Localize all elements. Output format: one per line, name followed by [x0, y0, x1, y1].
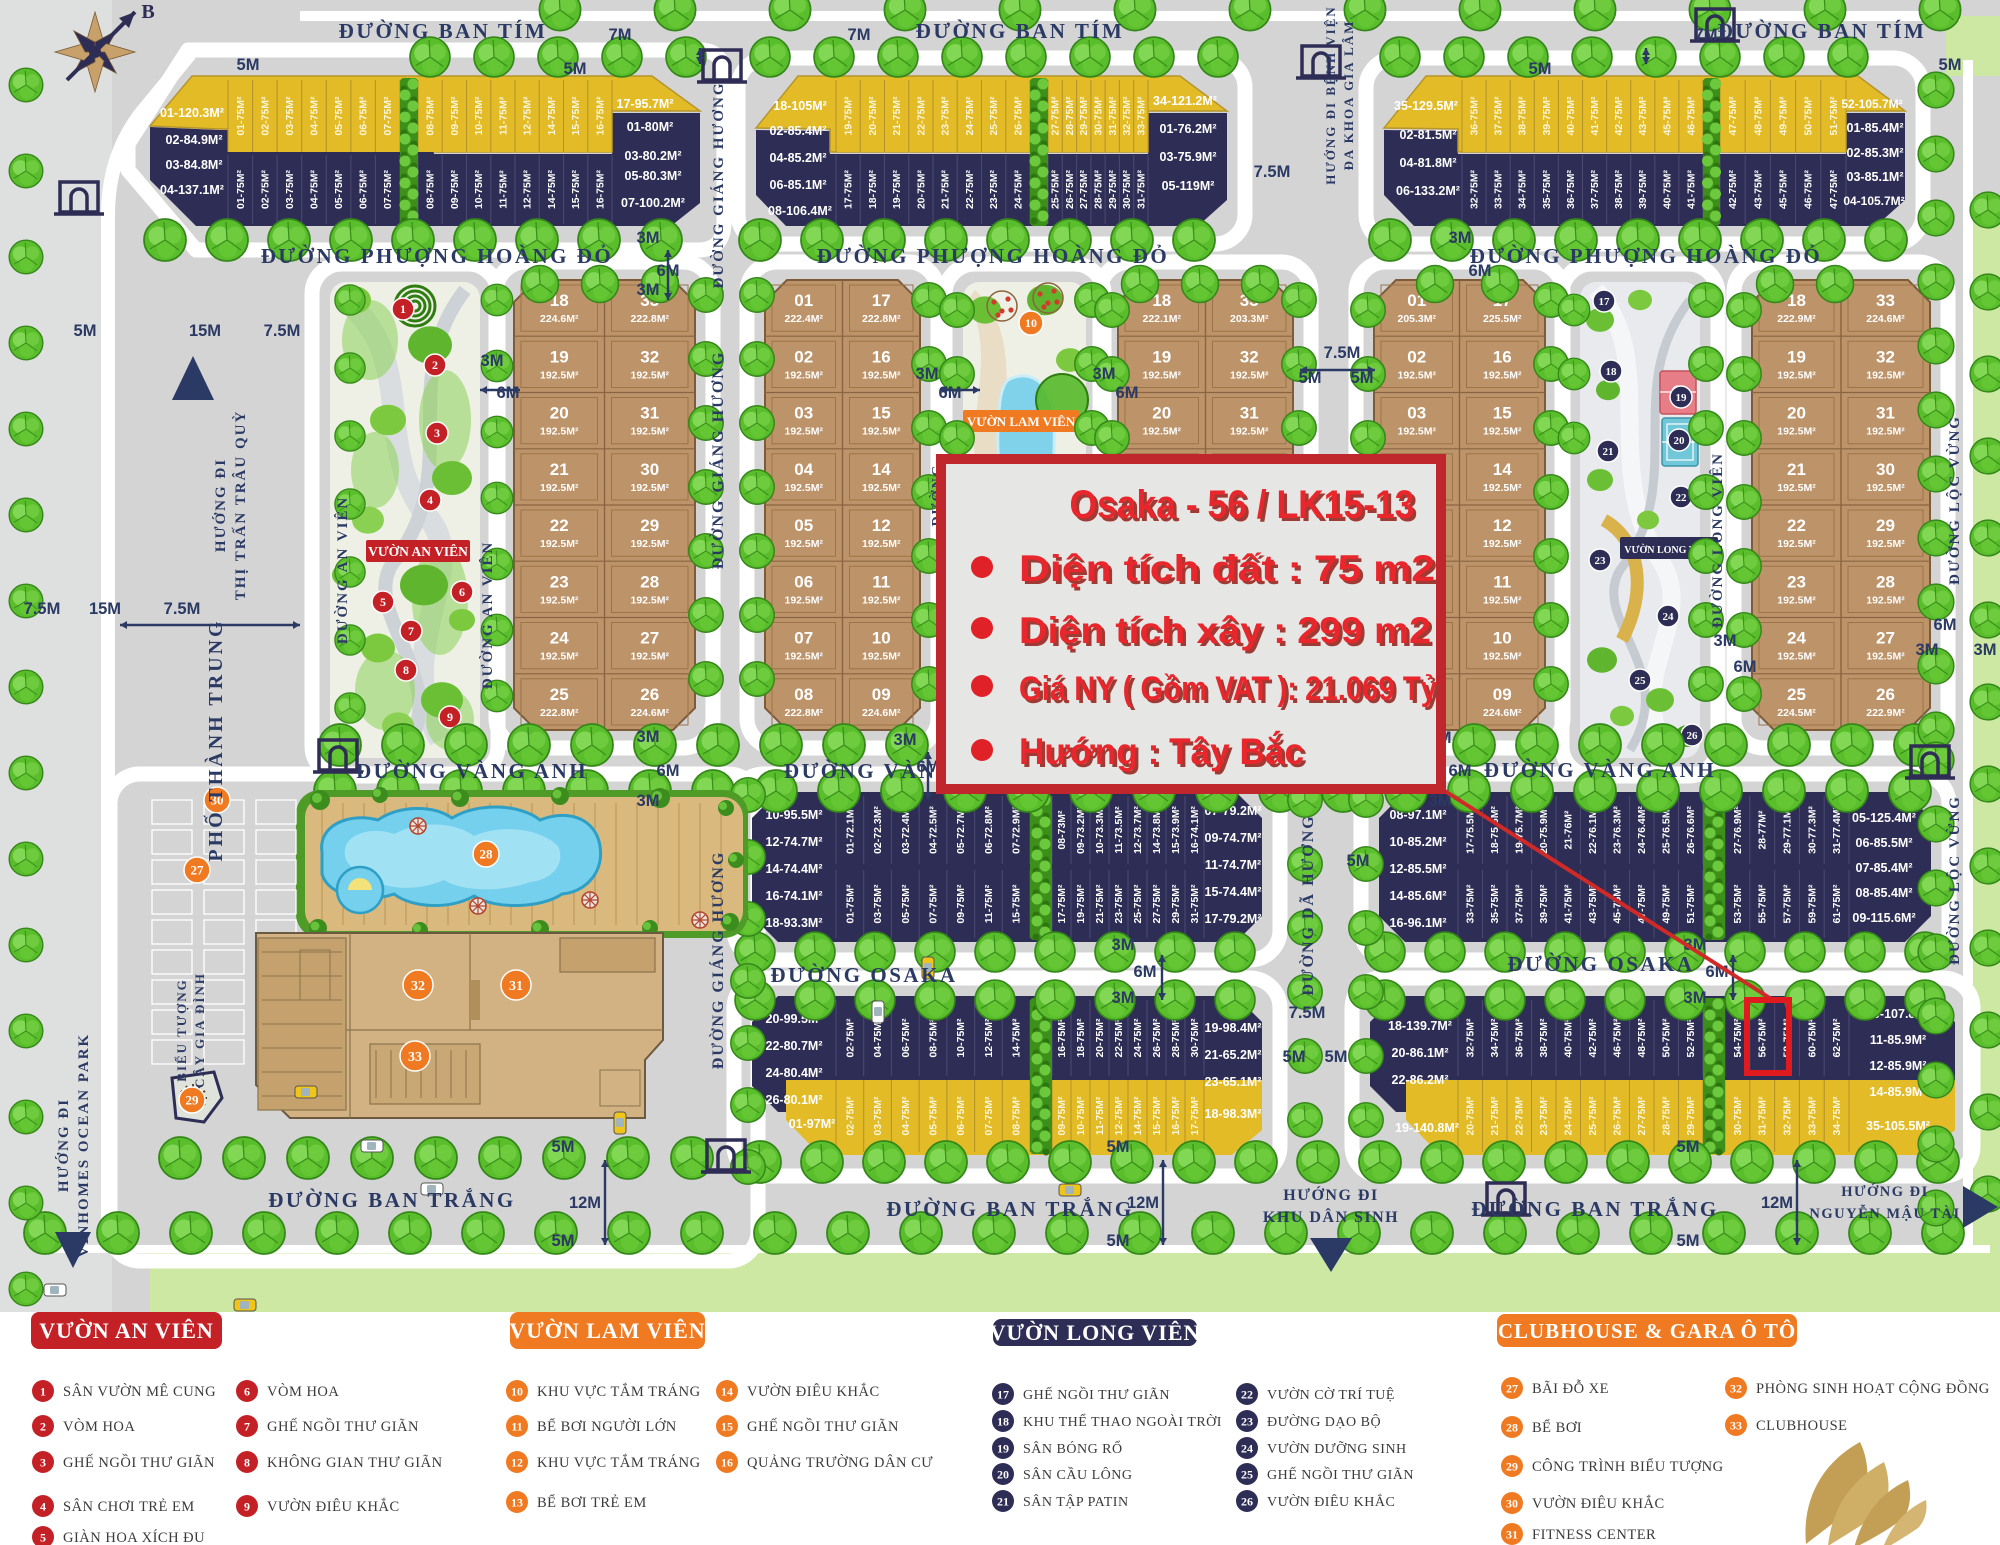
- svg-text:07-75M²: 07-75M²: [382, 169, 394, 209]
- svg-text:04-75M²: 04-75M²: [308, 169, 320, 209]
- svg-text:07-85.4M²: 07-85.4M²: [1856, 861, 1913, 875]
- svg-text:6M: 6M: [1116, 384, 1139, 402]
- svg-text:CLUBHOUSE & GARA Ô TÔ: CLUBHOUSE & GARA Ô TÔ: [1498, 1319, 1796, 1343]
- svg-text:7M: 7M: [848, 26, 871, 44]
- svg-text:27-76.9M²: 27-76.9M²: [1732, 806, 1744, 854]
- svg-text:192.5M²: 192.5M²: [784, 538, 823, 550]
- svg-text:57-75M²: 57-75M²: [1781, 884, 1793, 924]
- svg-text:30-75M²: 30-75M²: [1092, 96, 1104, 136]
- svg-text:3M: 3M: [637, 281, 660, 299]
- svg-text:3M: 3M: [1112, 989, 1135, 1007]
- svg-text:SÂN VƯỜN MÊ CUNG: SÂN VƯỜN MÊ CUNG: [63, 1383, 216, 1400]
- svg-text:7M: 7M: [609, 26, 632, 44]
- svg-text:04-137.1M²: 04-137.1M²: [160, 183, 224, 197]
- svg-text:3M: 3M: [637, 792, 660, 810]
- svg-text:PHÒNG SINH HOẠT CỘNG ĐỒNG: PHÒNG SINH HOẠT CỘNG ĐỒNG: [1756, 1379, 1990, 1397]
- svg-text:24-75M²: 24-75M²: [1563, 1096, 1575, 1136]
- svg-text:21: 21: [1603, 446, 1614, 458]
- svg-text:192.5M²: 192.5M²: [1777, 594, 1816, 606]
- svg-text:48-75M²: 48-75M²: [1752, 96, 1764, 136]
- svg-text:03-75.9M²: 03-75.9M²: [1160, 150, 1217, 164]
- svg-text:14-75M²: 14-75M²: [1132, 1096, 1144, 1136]
- svg-text:ĐƯỜNG BAN TÍM: ĐƯỜNG BAN TÍM: [1718, 19, 1927, 43]
- svg-text:46-75M²: 46-75M²: [1685, 96, 1697, 136]
- svg-text:5M: 5M: [552, 1232, 575, 1250]
- svg-text:5M: 5M: [1283, 1048, 1306, 1066]
- svg-text:05-75M²: 05-75M²: [333, 96, 345, 136]
- svg-text:222.4M²: 222.4M²: [784, 313, 823, 325]
- svg-text:56-75M²: 56-75M²: [1757, 1018, 1769, 1058]
- svg-text:55-75M²: 55-75M²: [1757, 884, 1769, 924]
- svg-text:42-75M²: 42-75M²: [1587, 1018, 1599, 1058]
- svg-text:36-75M²: 36-75M²: [1514, 1018, 1526, 1058]
- svg-text:14-75M²: 14-75M²: [546, 169, 558, 209]
- svg-text:ĐƯỜNG LỘC VỪNG: ĐƯỜNG LỘC VỪNG: [1946, 795, 1963, 965]
- svg-text:01-76.2M²: 01-76.2M²: [1160, 122, 1217, 136]
- svg-text:192.5M²: 192.5M²: [1483, 651, 1522, 663]
- svg-text:ĐƯỜNG BAN TRẮNG: ĐƯỜNG BAN TRẮNG: [268, 1188, 516, 1212]
- svg-text:02-75M²: 02-75M²: [259, 96, 271, 136]
- svg-text:03-80.2M²: 03-80.2M²: [625, 149, 682, 163]
- svg-text:07-75M²: 07-75M²: [382, 96, 394, 136]
- svg-text:01-120.3M²: 01-120.3M²: [160, 106, 224, 120]
- svg-text:23: 23: [1787, 572, 1806, 591]
- svg-text:01: 01: [794, 291, 813, 310]
- svg-text:1: 1: [40, 1385, 46, 1399]
- svg-text:27-75M²: 27-75M²: [1050, 96, 1062, 136]
- svg-text:17: 17: [997, 1388, 1009, 1402]
- svg-text:8: 8: [244, 1456, 250, 1470]
- svg-text:22: 22: [550, 516, 569, 535]
- svg-text:26: 26: [1241, 1495, 1253, 1509]
- svg-text:06-75M²: 06-75M²: [955, 1096, 967, 1136]
- svg-text:31-75M²: 31-75M²: [1107, 96, 1119, 136]
- svg-text:33-75M²: 33-75M²: [1493, 169, 1505, 209]
- svg-text:28: 28: [640, 572, 659, 591]
- svg-text:VÒM HOA: VÒM HOA: [267, 1383, 339, 1400]
- svg-text:4: 4: [427, 493, 433, 507]
- svg-text:BỂ BƠI NGƯỜI LỚN: BỂ BƠI NGƯỜI LỚN: [537, 1417, 677, 1435]
- svg-text:VƯỜN DƯỠNG SINH: VƯỜN DƯỠNG SINH: [1267, 1440, 1407, 1457]
- svg-text:VƯỜN LONG VIÊN: VƯỜN LONG VIÊN: [990, 1320, 1201, 1345]
- svg-text:32-75M²: 32-75M²: [1781, 1096, 1793, 1136]
- svg-text:15M: 15M: [89, 600, 121, 618]
- svg-text:43-75M²: 43-75M²: [1637, 96, 1649, 136]
- svg-text:25-76.5M²: 25-76.5M²: [1661, 806, 1673, 854]
- svg-text:21-65.2M²: 21-65.2M²: [1205, 1048, 1262, 1062]
- svg-text:47-75M²: 47-75M²: [1727, 96, 1739, 136]
- svg-text:SÂN CHƠI TRẺ EM: SÂN CHƠI TRẺ EM: [63, 1498, 195, 1515]
- svg-text:15-75M²: 15-75M²: [1151, 1096, 1163, 1136]
- svg-text:09: 09: [872, 685, 891, 704]
- svg-text:23: 23: [1595, 555, 1607, 567]
- svg-text:51-75M²: 51-75M²: [1828, 96, 1840, 136]
- svg-text:29: 29: [1876, 516, 1895, 535]
- svg-text:ĐƯỜNG DẠO BỘ: ĐƯỜNG DẠO BỘ: [1267, 1413, 1381, 1430]
- svg-text:20: 20: [550, 404, 569, 423]
- svg-text:15-75M²: 15-75M²: [1011, 884, 1023, 924]
- svg-text:15-73.9M²: 15-73.9M²: [1170, 806, 1182, 854]
- svg-text:27: 27: [1876, 629, 1895, 648]
- svg-text:ĐƯỜNG OSAKA: ĐƯỜNG OSAKA: [1507, 952, 1694, 976]
- svg-text:49-75M²: 49-75M²: [1777, 96, 1789, 136]
- svg-text:61-75M²: 61-75M²: [1831, 884, 1843, 924]
- svg-text:30: 30: [1506, 1497, 1518, 1511]
- svg-text:31: 31: [1240, 404, 1259, 423]
- svg-text:16: 16: [721, 1456, 733, 1470]
- svg-text:10-75M²: 10-75M²: [1075, 1096, 1087, 1136]
- svg-text:192.5M²: 192.5M²: [630, 538, 669, 550]
- svg-text:6M: 6M: [1469, 262, 1492, 280]
- svg-text:15-75M²: 15-75M²: [570, 96, 582, 136]
- svg-text:35-129.5M²: 35-129.5M²: [1394, 99, 1458, 113]
- svg-text:05-75M²: 05-75M²: [900, 884, 912, 924]
- svg-text:222.8M²: 222.8M²: [862, 313, 901, 325]
- svg-text:29: 29: [1506, 1460, 1518, 1474]
- svg-text:22-75M²: 22-75M²: [915, 96, 927, 136]
- svg-text:3M: 3M: [481, 352, 504, 370]
- svg-text:06-133.2M²: 06-133.2M²: [1396, 184, 1460, 198]
- svg-text:QUẢNG TRƯỜNG DÂN CƯ: QUẢNG TRƯỜNG DÂN CƯ: [747, 1454, 933, 1471]
- svg-text:6M: 6M: [497, 384, 520, 402]
- svg-text:34-75M²: 34-75M²: [1489, 1018, 1501, 1058]
- svg-text:26-76.6M²: 26-76.6M²: [1685, 806, 1697, 854]
- svg-text:Diện tích đất : 75 m2: Diện tích đất : 75 m2: [1019, 548, 1435, 589]
- svg-text:25: 25: [1635, 675, 1647, 687]
- svg-text:192.5M²: 192.5M²: [784, 426, 823, 438]
- svg-text:07-75M²: 07-75M²: [927, 884, 939, 924]
- svg-text:192.5M²: 192.5M²: [862, 538, 901, 550]
- svg-text:192.5M²: 192.5M²: [1777, 538, 1816, 550]
- svg-text:14-85.9M²: 14-85.9M²: [1870, 1085, 1927, 1099]
- svg-text:41-75M²: 41-75M²: [1589, 96, 1601, 136]
- svg-text:24-75M²: 24-75M²: [964, 96, 976, 136]
- svg-text:6M: 6M: [657, 762, 680, 780]
- svg-text:40-75M²: 40-75M²: [1661, 169, 1673, 209]
- svg-text:18-98.3M²: 18-98.3M²: [1205, 1107, 1262, 1121]
- svg-text:192.5M²: 192.5M²: [1483, 594, 1522, 606]
- svg-text:24-75M²: 24-75M²: [1132, 1018, 1144, 1058]
- svg-text:15: 15: [1493, 404, 1512, 423]
- svg-text:224.6M²: 224.6M²: [862, 707, 901, 719]
- svg-text:06-85.1M²: 06-85.1M²: [770, 178, 827, 192]
- svg-text:28-75M²: 28-75M²: [1661, 1096, 1673, 1136]
- svg-text:222.8M²: 222.8M²: [540, 707, 579, 719]
- svg-text:192.5M²: 192.5M²: [1142, 369, 1181, 381]
- svg-text:26-80.1M²: 26-80.1M²: [766, 1093, 823, 1107]
- svg-text:25-75M²: 25-75M²: [1050, 169, 1062, 209]
- svg-text:ĐƯỜNG LONG VIÊN: ĐƯỜNG LONG VIÊN: [1709, 452, 1726, 628]
- svg-text:38-75M²: 38-75M²: [1613, 169, 1625, 209]
- svg-text:28: 28: [480, 847, 494, 862]
- svg-text:7.5M: 7.5M: [1289, 1004, 1326, 1022]
- svg-text:39-75M²: 39-75M²: [1637, 169, 1649, 209]
- svg-text:1: 1: [400, 302, 406, 316]
- svg-text:224.6M²: 224.6M²: [1866, 313, 1905, 325]
- svg-text:11-75M²: 11-75M²: [497, 96, 509, 135]
- svg-text:16-75M²: 16-75M²: [594, 96, 606, 136]
- svg-text:06-72.8M²: 06-72.8M²: [983, 806, 995, 854]
- svg-text:27-75M²: 27-75M²: [1151, 884, 1163, 924]
- svg-text:SÂN BÓNG RỔ: SÂN BÓNG RỔ: [1023, 1439, 1123, 1457]
- svg-text:16-75M²: 16-75M²: [1056, 1018, 1068, 1058]
- svg-text:03-84.8M²: 03-84.8M²: [166, 158, 223, 172]
- svg-text:BỂ BƠI: BỂ BƠI: [1532, 1418, 1582, 1436]
- svg-text:5M: 5M: [1299, 369, 1322, 387]
- svg-text:03-75M²: 03-75M²: [284, 96, 296, 136]
- svg-text:03: 03: [1407, 404, 1426, 423]
- svg-text:20-75M²: 20-75M²: [1094, 1018, 1106, 1058]
- svg-text:192.5M²: 192.5M²: [862, 426, 901, 438]
- svg-text:16: 16: [872, 347, 891, 366]
- svg-text:01-75M²: 01-75M²: [844, 884, 856, 924]
- svg-text:19-75.7M²: 19-75.7M²: [1514, 806, 1526, 854]
- svg-text:02-75M²: 02-75M²: [259, 169, 271, 209]
- svg-text:40-75M²: 40-75M²: [1565, 96, 1577, 136]
- svg-text:06: 06: [794, 572, 813, 591]
- svg-text:17-75M²: 17-75M²: [1189, 1096, 1201, 1136]
- svg-text:18-139.7M²: 18-139.7M²: [1388, 1019, 1452, 1033]
- svg-text:192.5M²: 192.5M²: [630, 426, 669, 438]
- svg-text:06-75M²: 06-75M²: [358, 96, 370, 136]
- svg-text:25-75M²: 25-75M²: [1132, 884, 1144, 924]
- svg-text:192.5M²: 192.5M²: [1397, 369, 1436, 381]
- svg-text:6: 6: [459, 585, 465, 599]
- svg-text:08-75M²: 08-75M²: [1011, 1096, 1023, 1136]
- svg-text:21-75M²: 21-75M²: [940, 169, 952, 209]
- svg-text:192.5M²: 192.5M²: [1866, 369, 1905, 381]
- svg-text:17: 17: [1599, 296, 1611, 308]
- svg-text:26-75M²: 26-75M²: [1151, 1018, 1163, 1058]
- svg-text:Osaka - 56 / LK15-13: Osaka - 56 / LK15-13: [1070, 483, 1415, 527]
- svg-text:02-75M²: 02-75M²: [844, 1096, 856, 1136]
- svg-text:08-85.4M²: 08-85.4M²: [1856, 886, 1913, 900]
- svg-text:18-93.3M²: 18-93.3M²: [766, 916, 823, 930]
- svg-text:222.1M²: 222.1M²: [1142, 313, 1181, 325]
- svg-text:23-75M²: 23-75M²: [988, 169, 1000, 209]
- svg-text:NGUYỄN MẬU TÀI: NGUYỄN MẬU TÀI: [1809, 1204, 1960, 1222]
- svg-text:222.8M²: 222.8M²: [784, 707, 823, 719]
- svg-text:192.5M²: 192.5M²: [1777, 426, 1816, 438]
- svg-text:29-75M²: 29-75M²: [1170, 884, 1182, 924]
- svg-text:25: 25: [1241, 1468, 1253, 1482]
- svg-text:06-75M²: 06-75M²: [900, 1018, 912, 1058]
- svg-text:192.5M²: 192.5M²: [630, 482, 669, 494]
- svg-text:24: 24: [550, 629, 569, 648]
- svg-text:20-86.1M²: 20-86.1M²: [1392, 1046, 1449, 1060]
- svg-text:27: 27: [1506, 1382, 1518, 1396]
- svg-text:12-85.9M²: 12-85.9M²: [1870, 1059, 1927, 1073]
- svg-text:33-75M²: 33-75M²: [1806, 1096, 1818, 1136]
- svg-text:3M: 3M: [1112, 936, 1135, 954]
- svg-text:7.5M: 7.5M: [1324, 344, 1361, 362]
- svg-text:37-75M²: 37-75M²: [1514, 884, 1526, 924]
- svg-text:192.5M²: 192.5M²: [784, 651, 823, 663]
- svg-text:26-75M²: 26-75M²: [1064, 169, 1076, 209]
- svg-text:02-81.5M²: 02-81.5M²: [1400, 128, 1457, 142]
- svg-text:12: 12: [872, 516, 891, 535]
- svg-text:53-75M²: 53-75M²: [1732, 884, 1744, 924]
- svg-text:5: 5: [40, 1531, 46, 1545]
- svg-text:16-74.1M²: 16-74.1M²: [1189, 806, 1201, 854]
- svg-text:3M: 3M: [1093, 365, 1116, 383]
- svg-text:5M: 5M: [1939, 56, 1962, 74]
- svg-text:15M: 15M: [189, 322, 221, 340]
- svg-text:192.5M²: 192.5M²: [1230, 369, 1269, 381]
- svg-text:59-75M²: 59-75M²: [1806, 884, 1818, 924]
- svg-text:33-75M²: 33-75M²: [1465, 884, 1477, 924]
- svg-text:6M: 6M: [1134, 963, 1157, 981]
- svg-text:27: 27: [640, 629, 659, 648]
- svg-text:VƯỜN AN VIÊN: VƯỜN AN VIÊN: [368, 544, 468, 559]
- svg-text:37-75M²: 37-75M²: [1493, 96, 1505, 136]
- svg-text:7.5M: 7.5M: [1254, 163, 1291, 181]
- svg-text:192.5M²: 192.5M²: [1866, 594, 1905, 606]
- svg-text:51-75M²: 51-75M²: [1685, 884, 1697, 924]
- svg-text:23: 23: [1241, 1415, 1253, 1429]
- svg-text:30-75M²: 30-75M²: [1189, 1018, 1201, 1058]
- svg-text:GHẾ NGỒI THƯ GIÃN: GHẾ NGỒI THƯ GIÃN: [1023, 1385, 1170, 1403]
- svg-text:09: 09: [1493, 685, 1512, 704]
- svg-text:Diện tích xây : 299 m2: Diện tích xây : 299 m2: [1019, 610, 1431, 651]
- svg-text:5M: 5M: [1677, 1232, 1700, 1250]
- svg-text:12-75M²: 12-75M²: [522, 96, 534, 136]
- svg-text:01-75M²: 01-75M²: [235, 96, 247, 136]
- svg-text:BÃI ĐỖ XE: BÃI ĐỖ XE: [1532, 1379, 1609, 1397]
- svg-text:30-75M²: 30-75M²: [1121, 169, 1133, 209]
- svg-text:192.5M²: 192.5M²: [1483, 369, 1522, 381]
- svg-text:18-75.6M²: 18-75.6M²: [1489, 806, 1501, 854]
- svg-text:192.5M²: 192.5M²: [1777, 369, 1816, 381]
- svg-text:7: 7: [244, 1420, 250, 1434]
- svg-text:Giá NY ( Gồm VAT ): 21.069 Tỷ: Giá NY ( Gồm VAT ): 21.069 Tỷ: [1019, 670, 1437, 708]
- svg-text:45-75M²: 45-75M²: [1777, 169, 1789, 209]
- svg-text:20: 20: [1674, 435, 1686, 447]
- svg-text:192.5M²: 192.5M²: [1777, 651, 1816, 663]
- svg-text:50-75M²: 50-75M²: [1661, 1018, 1673, 1058]
- svg-text:07: 07: [794, 629, 813, 648]
- svg-text:14-85.6M²: 14-85.6M²: [1390, 889, 1447, 903]
- svg-text:14-75M²: 14-75M²: [1011, 1018, 1023, 1058]
- svg-text:15-74.4M²: 15-74.4M²: [1205, 885, 1262, 899]
- svg-text:22-80.7M²: 22-80.7M²: [766, 1039, 823, 1053]
- svg-text:KHU DÂN SINH: KHU DÂN SINH: [1263, 1207, 1399, 1226]
- svg-text:10-75M²: 10-75M²: [473, 169, 485, 209]
- svg-text:24-75M²: 24-75M²: [1012, 169, 1024, 209]
- svg-text:30: 30: [1876, 460, 1895, 479]
- svg-text:02: 02: [794, 347, 813, 366]
- svg-text:24: 24: [1663, 611, 1675, 623]
- svg-text:08-106.4M²: 08-106.4M²: [768, 204, 832, 218]
- svg-text:08-75M²: 08-75M²: [927, 1018, 939, 1058]
- svg-text:192.5M²: 192.5M²: [540, 651, 579, 663]
- svg-text:24: 24: [1787, 629, 1806, 648]
- svg-text:27-75M²: 27-75M²: [1078, 169, 1090, 209]
- svg-text:222.9M²: 222.9M²: [1866, 707, 1905, 719]
- svg-text:19-140.8M²: 19-140.8M²: [1395, 1121, 1459, 1135]
- svg-text:9: 9: [244, 1500, 250, 1514]
- svg-text:04-72.5M²: 04-72.5M²: [927, 806, 939, 854]
- svg-text:32: 32: [1730, 1382, 1742, 1396]
- svg-text:14: 14: [872, 460, 891, 479]
- svg-text:192.5M²: 192.5M²: [1142, 426, 1181, 438]
- svg-text:GHẾ NGỒI THƯ GIÃN: GHẾ NGỒI THƯ GIÃN: [1267, 1465, 1414, 1483]
- svg-text:05: 05: [794, 516, 813, 535]
- svg-text:3M: 3M: [1916, 641, 1939, 659]
- svg-text:35-75M²: 35-75M²: [1541, 169, 1553, 209]
- svg-text:31: 31: [1876, 404, 1895, 423]
- svg-text:12-75M²: 12-75M²: [983, 1018, 995, 1058]
- svg-text:BIỂU TƯỢNG: BIỂU TƯỢNG: [174, 978, 189, 1081]
- svg-text:GHẾ NGỒI THƯ GIÃN: GHẾ NGỒI THƯ GIÃN: [63, 1453, 215, 1471]
- svg-text:19: 19: [550, 347, 569, 366]
- svg-text:5M: 5M: [1107, 1138, 1130, 1156]
- svg-text:21: 21: [997, 1495, 1009, 1509]
- svg-text:17-79.2M²: 17-79.2M²: [1205, 912, 1262, 926]
- svg-text:25: 25: [1787, 685, 1806, 704]
- svg-text:192.5M²: 192.5M²: [784, 482, 823, 494]
- svg-text:32-75M²: 32-75M²: [1121, 96, 1133, 136]
- svg-text:192.5M²: 192.5M²: [540, 369, 579, 381]
- svg-text:05-80.3M²: 05-80.3M²: [625, 169, 682, 183]
- svg-text:32: 32: [640, 347, 659, 366]
- svg-text:28-75M²: 28-75M²: [1064, 96, 1076, 136]
- svg-text:21-75M²: 21-75M²: [891, 96, 903, 136]
- svg-text:10-73.3M²: 10-73.3M²: [1094, 806, 1106, 854]
- svg-text:GHẾ NGỒI THƯ GIÃN: GHẾ NGỒI THƯ GIÃN: [747, 1417, 899, 1435]
- svg-text:31: 31: [640, 404, 659, 423]
- svg-text:VƯỜN LAM VIÊN: VƯỜN LAM VIÊN: [967, 414, 1076, 429]
- svg-text:BỂ BƠI TRẺ EM: BỂ BƠI TRẺ EM: [537, 1493, 647, 1511]
- svg-text:192.5M²: 192.5M²: [630, 651, 669, 663]
- svg-text:11: 11: [872, 572, 890, 591]
- svg-text:07-100.2M²: 07-100.2M²: [621, 196, 685, 210]
- svg-text:ĐƯỜNG LỘC VỪNG: ĐƯỜNG LỘC VỪNG: [1946, 415, 1963, 585]
- svg-text:222.8M²: 222.8M²: [630, 313, 669, 325]
- svg-text:ĐƯỜNG OSAKA: ĐƯỜNG OSAKA: [770, 963, 957, 987]
- svg-text:16: 16: [1493, 347, 1512, 366]
- svg-text:192.5M²: 192.5M²: [540, 538, 579, 550]
- svg-text:19: 19: [1152, 347, 1171, 366]
- svg-text:52-105.7M²: 52-105.7M²: [1841, 97, 1902, 111]
- svg-text:47-75M²: 47-75M²: [1828, 169, 1840, 209]
- svg-text:HƯỚNG ĐI: HƯỚNG ĐI: [212, 458, 229, 552]
- svg-text:2: 2: [432, 358, 438, 372]
- svg-text:VƯỜN ĐIÊU KHẮC: VƯỜN ĐIÊU KHẮC: [1532, 1495, 1665, 1512]
- svg-text:16-75M²: 16-75M²: [1170, 1096, 1182, 1136]
- svg-text:38-75M²: 38-75M²: [1517, 96, 1529, 136]
- svg-text:22-75M²: 22-75M²: [1113, 1018, 1125, 1058]
- svg-text:29-75M²: 29-75M²: [1107, 169, 1119, 209]
- svg-text:11: 11: [511, 1420, 522, 1434]
- svg-text:HƯỚNG ĐI BỆNH VIỆN: HƯỚNG ĐI BỆNH VIỆN: [1323, 5, 1338, 184]
- svg-text:28: 28: [1506, 1421, 1518, 1435]
- svg-text:GHẾ NGỒI THƯ GIÃN: GHẾ NGỒI THƯ GIÃN: [267, 1417, 419, 1435]
- svg-text:02-85.3M²: 02-85.3M²: [1847, 146, 1904, 160]
- svg-text:6M: 6M: [1449, 762, 1472, 780]
- svg-text:6M: 6M: [939, 384, 962, 402]
- svg-text:21: 21: [550, 460, 569, 479]
- svg-text:22: 22: [1787, 516, 1806, 535]
- svg-text:7.5M: 7.5M: [264, 322, 301, 340]
- svg-text:21-75M²: 21-75M²: [1094, 884, 1106, 924]
- svg-text:9: 9: [447, 710, 453, 724]
- svg-text:3M: 3M: [1449, 229, 1472, 247]
- svg-text:20-75M²: 20-75M²: [867, 96, 879, 136]
- svg-text:27-75M²: 27-75M²: [1636, 1096, 1648, 1136]
- svg-text:192.5M²: 192.5M²: [1483, 426, 1522, 438]
- svg-text:2: 2: [40, 1420, 46, 1434]
